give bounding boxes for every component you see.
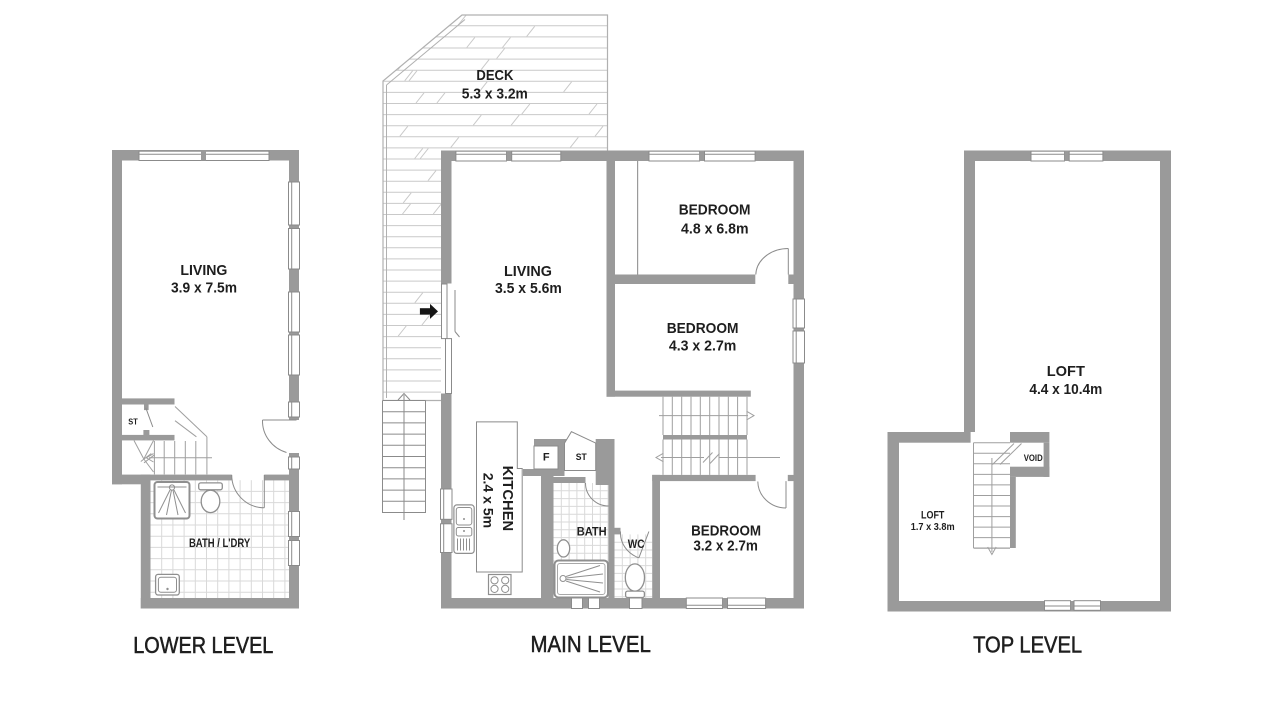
svg-text:MAIN LEVEL: MAIN LEVEL xyxy=(531,631,651,657)
svg-text:LIVING: LIVING xyxy=(504,263,552,280)
svg-text:ST: ST xyxy=(576,452,587,462)
svg-text:4.8 x 6.8m: 4.8 x 6.8m xyxy=(681,221,749,237)
svg-text:TOP LEVEL: TOP LEVEL xyxy=(973,632,1082,658)
svg-text:DECK: DECK xyxy=(476,67,513,84)
svg-text:BEDROOM: BEDROOM xyxy=(691,523,761,540)
svg-text:1.7 x 3.8m: 1.7 x 3.8m xyxy=(911,521,955,533)
svg-text:3.2 x 2.7m: 3.2 x 2.7m xyxy=(693,539,758,555)
svg-text:4.4 x 10.4m: 4.4 x 10.4m xyxy=(1029,382,1102,398)
svg-text:BATH / L'DRY: BATH / L'DRY xyxy=(189,536,250,550)
svg-text:BATH: BATH xyxy=(577,525,607,539)
svg-text:2.4 x 5m: 2.4 x 5m xyxy=(481,473,497,528)
svg-text:F: F xyxy=(543,452,550,464)
svg-text:3.5 x 5.6m: 3.5 x 5.6m xyxy=(495,281,562,297)
svg-text:KITCHEN: KITCHEN xyxy=(499,466,516,532)
svg-text:WC: WC xyxy=(628,537,645,551)
svg-text:3.9 x 7.5m: 3.9 x 7.5m xyxy=(171,281,237,297)
svg-text:LOFT: LOFT xyxy=(1047,363,1085,380)
svg-text:VOID: VOID xyxy=(1024,453,1043,463)
svg-text:LOFT: LOFT xyxy=(921,510,945,522)
svg-text:4.3 x 2.7m: 4.3 x 2.7m xyxy=(669,339,737,355)
svg-text:ST: ST xyxy=(128,416,138,426)
svg-text:LIVING: LIVING xyxy=(180,262,227,279)
svg-text:BEDROOM: BEDROOM xyxy=(679,202,751,219)
svg-text:5.3 x 3.2m: 5.3 x 3.2m xyxy=(462,87,528,103)
svg-text:LOWER LEVEL: LOWER LEVEL xyxy=(133,632,273,658)
svg-text:BEDROOM: BEDROOM xyxy=(667,320,739,337)
